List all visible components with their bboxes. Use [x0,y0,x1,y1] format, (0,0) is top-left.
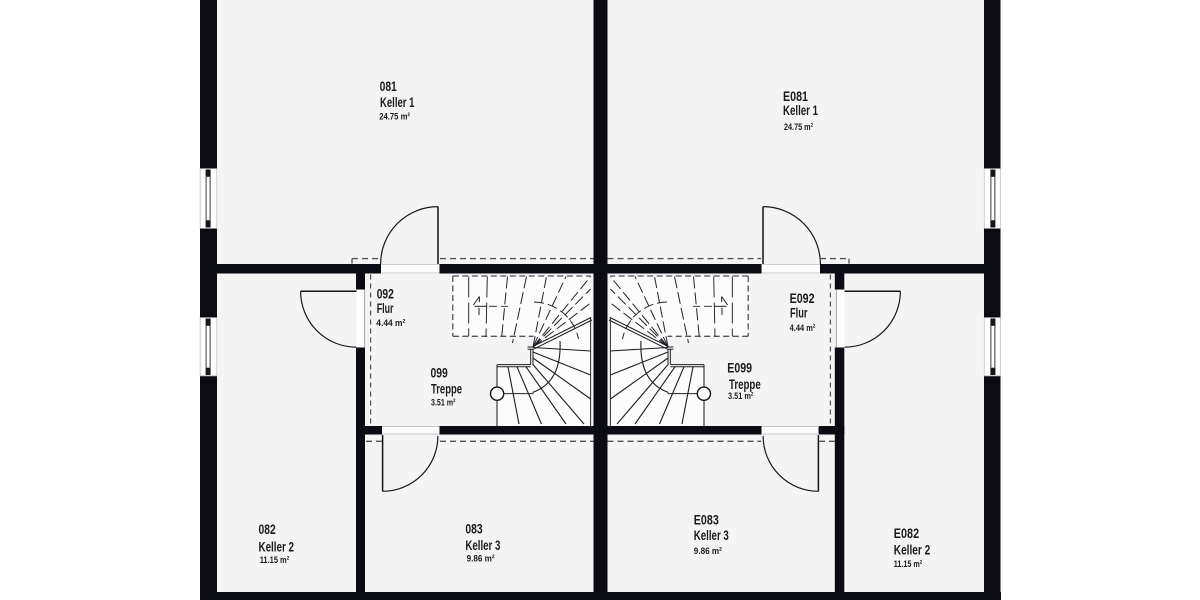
svg-text:Keller 3: Keller 3 [694,528,729,543]
svg-text:11.15 m²: 11.15 m² [894,559,922,570]
svg-text:Keller 1: Keller 1 [783,103,818,118]
svg-text:Flur: Flur [790,306,808,321]
svg-text:24.75 m²: 24.75 m² [784,122,813,133]
svg-text:E082: E082 [894,526,919,542]
svg-text:3.51 m²: 3.51 m² [431,397,456,408]
svg-text:4.44 m²: 4.44 m² [376,318,405,329]
svg-text:Keller 2: Keller 2 [894,542,930,557]
svg-text:Treppe: Treppe [431,382,462,397]
svg-text:083: 083 [465,521,482,537]
svg-text:24.75 m²: 24.75 m² [379,112,410,123]
svg-text:9.86 m²: 9.86 m² [694,546,722,557]
svg-text:081: 081 [380,79,397,95]
svg-text:E092: E092 [790,291,815,307]
svg-text:11.15 m²: 11.15 m² [260,555,290,566]
svg-text:099: 099 [431,366,448,382]
svg-text:Flur: Flur [377,301,394,316]
svg-text:Keller 1: Keller 1 [380,95,415,110]
svg-text:3.51 m²: 3.51 m² [728,391,753,402]
svg-text:Keller 2: Keller 2 [259,539,295,554]
svg-text:4.44 m²: 4.44 m² [790,323,816,334]
svg-text:E099: E099 [727,361,752,377]
svg-text:E083: E083 [694,512,719,528]
svg-text:9.86 m²: 9.86 m² [467,554,495,565]
svg-text:092: 092 [377,286,394,302]
svg-text:Treppe: Treppe [729,377,761,392]
svg-text:082: 082 [259,522,276,538]
svg-text:Keller 3: Keller 3 [465,538,500,553]
